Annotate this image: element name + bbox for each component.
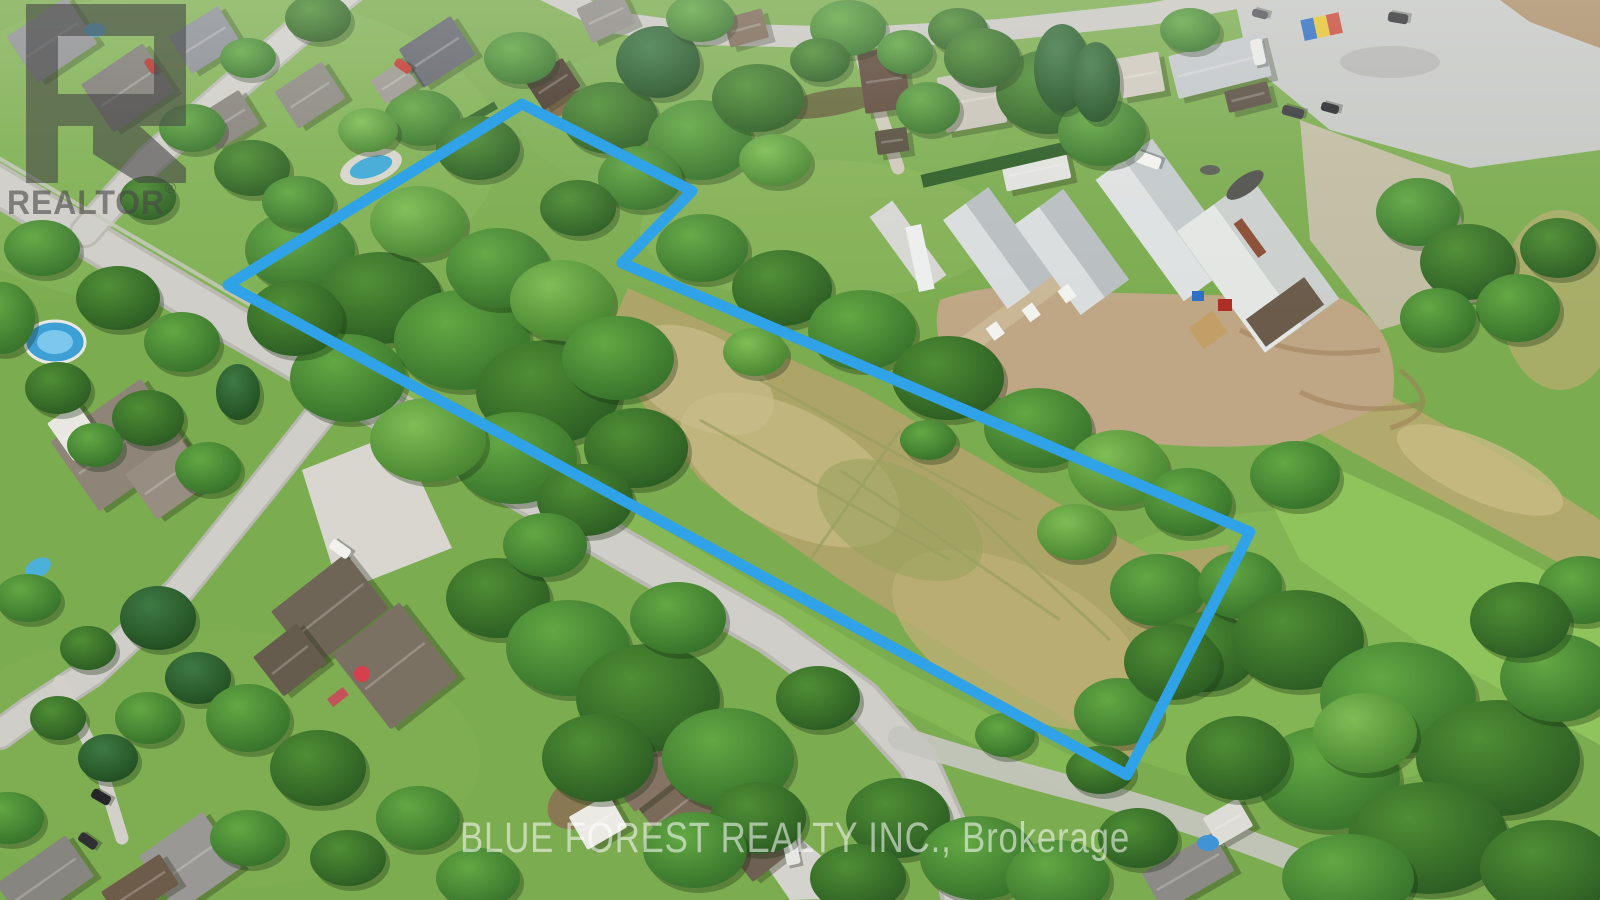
registered-trademark-icon: ® [165,180,176,197]
aerial-photo: REALTOR ® BLUE FOREST REALTY INC., Broke… [0,0,1600,900]
listing-photo-stage: REALTOR ® BLUE FOREST REALTY INC., Broke… [0,0,1600,900]
brokerage-watermark: BLUE FOREST REALTY INC., Brokerage [460,814,1130,862]
atmospheric-haze [0,0,1600,900]
realtor-r-left-bar [26,4,58,183]
realtor-wordmark: REALTOR [7,184,165,222]
